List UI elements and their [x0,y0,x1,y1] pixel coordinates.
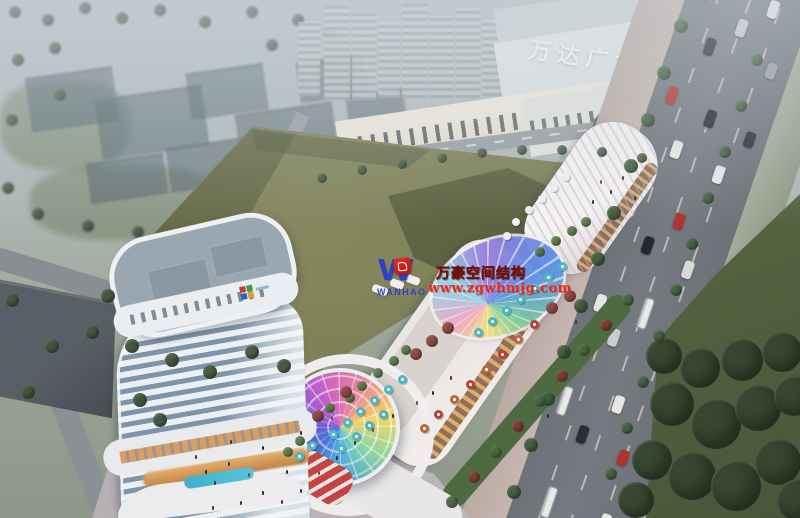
umbrella [379,410,388,419]
tree [624,159,638,173]
tree [512,420,524,432]
tree [719,146,731,158]
person [575,320,577,324]
tree [751,54,763,66]
person [354,441,356,445]
tree [622,294,634,306]
tree [670,284,682,296]
umbrella [295,452,304,461]
tree [203,365,217,379]
person [614,210,616,214]
tree [674,19,688,33]
tree [277,359,291,373]
tree [735,100,747,112]
tree [245,345,259,359]
tree [133,393,147,407]
person [205,470,207,474]
person [556,382,558,386]
umbrella [550,184,558,192]
watermark-logo-text: WANHAO [377,287,426,297]
umbrella [503,232,511,240]
tree [621,422,633,434]
person [450,376,452,380]
tree [641,113,655,127]
person [240,501,242,505]
umbrella [450,395,459,404]
person [634,196,636,200]
person [214,481,216,485]
watermark-logo-badge [393,257,411,274]
tree [397,159,407,169]
tree [605,468,617,480]
tree [591,252,605,266]
umbrella [474,328,483,337]
tree [556,370,568,382]
umbrella [525,206,533,214]
person [262,446,264,450]
tree [101,289,115,303]
tree [657,66,671,80]
tree [340,386,352,398]
tree [490,446,502,458]
umbrella [384,385,393,394]
umbrella [562,173,570,181]
tree [21,385,35,399]
person [281,500,283,504]
umbrella [558,262,567,271]
tree [373,368,383,378]
tree [468,471,480,483]
person [432,391,434,395]
tree [574,299,588,313]
tree [312,410,324,422]
umbrella [488,317,497,326]
tree [600,319,612,331]
tree [578,344,590,356]
tree [567,226,577,236]
umbrella [498,350,507,359]
person [416,401,418,405]
tree [389,356,399,366]
umbrella [329,430,338,439]
person [622,176,624,180]
person [286,470,288,474]
tree [442,322,454,334]
tree [535,247,545,257]
person [195,455,197,459]
tree [557,145,567,155]
tree [446,496,458,508]
tree [437,153,447,163]
umbrella [352,432,361,441]
person [592,200,594,204]
person [228,462,230,466]
umbrella [356,407,365,416]
aerial-rendering-scene: 万达广场 [0,0,800,518]
tree [507,485,521,499]
tree [557,345,571,359]
tree [686,238,698,250]
tree [546,302,558,314]
person [331,416,333,420]
tree [637,153,647,163]
tree [283,447,293,457]
umbrella [370,396,379,405]
person [248,473,250,477]
person [372,428,374,432]
person [610,190,612,194]
person [318,471,320,475]
tree [165,353,179,367]
tree [517,145,527,155]
person [230,440,232,444]
tree [357,381,367,391]
tree [325,403,335,413]
tree [45,339,59,353]
tree [477,148,487,158]
umbrella [514,335,523,344]
tree [125,339,139,353]
person [547,414,549,418]
person [212,506,214,510]
umbrella [420,424,429,433]
tree [5,293,19,307]
tree [551,236,561,246]
umbrella [308,441,317,450]
tree [597,147,607,157]
tree [534,395,546,407]
tree [85,325,99,339]
person [392,414,394,418]
watermark-website: www.zgwhmjg.com [428,281,572,296]
umbrella [512,218,520,226]
umbrella [343,418,352,427]
umbrella [530,320,539,329]
umbrella [337,444,346,453]
tree [295,436,305,446]
tree [317,173,327,183]
umbrella [502,306,511,315]
person [565,350,567,354]
person [262,491,264,495]
tree [653,330,665,342]
tree [702,192,714,204]
tree [153,413,167,427]
umbrella [398,375,407,384]
tree [581,217,591,227]
tree [524,438,538,452]
tree [637,376,649,388]
tree [410,348,422,360]
person [300,431,302,435]
person [336,456,338,460]
person [600,180,602,184]
watermark-company-name: 万豪空间结构 [436,263,526,283]
umbrella [466,380,475,389]
tree [426,335,438,347]
umbrella [538,195,546,203]
tree [357,165,367,175]
umbrella [434,410,443,419]
person [300,489,302,493]
umbrella [482,365,491,374]
